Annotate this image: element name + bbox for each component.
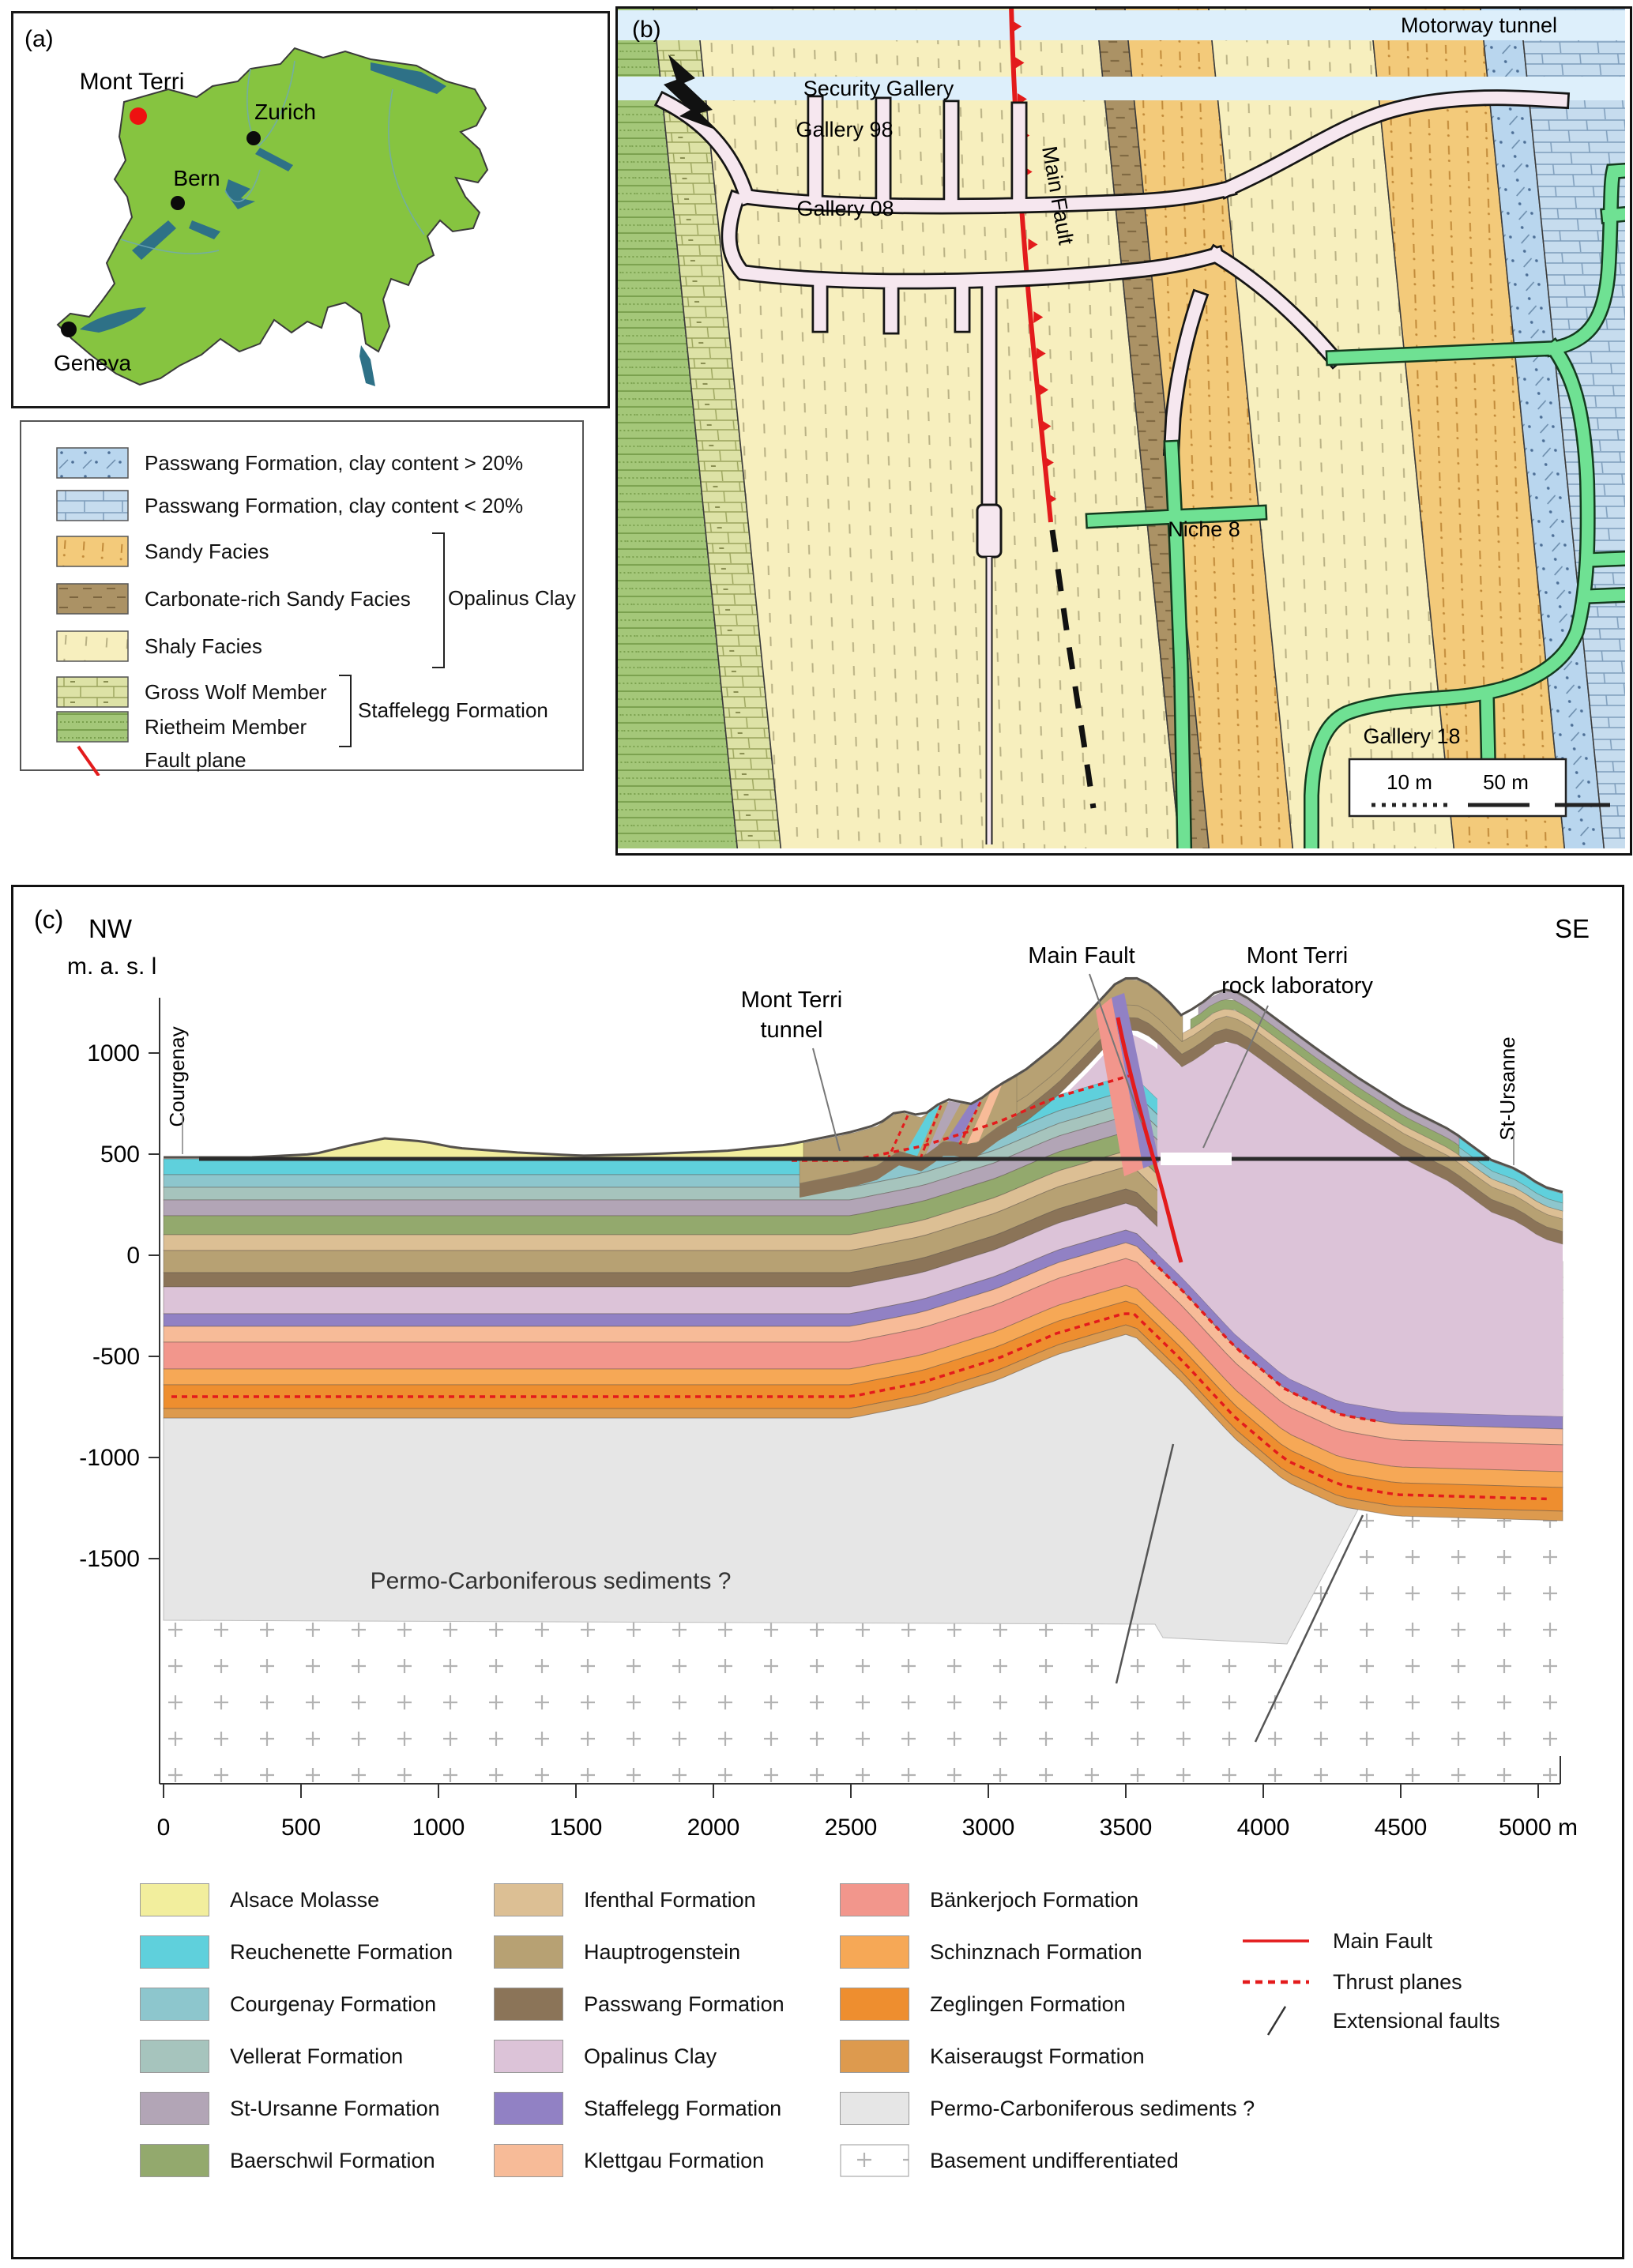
panel-b-gallery-map: (b) Motorway tunnel Security Gallery Gal… xyxy=(615,6,1632,856)
legend-b-swatch xyxy=(57,631,128,661)
rock-lab-label-1: Mont Terri xyxy=(1247,943,1348,969)
legend-c-item: Baerschwil Formation xyxy=(140,2144,435,2177)
staffelegg-group-label: Staffelegg Formation xyxy=(358,698,548,723)
legend-b-label: Passwang Formation, clay content < 20% xyxy=(145,494,523,518)
figure-root: Mont Terri Zurich Bern Geneva (a) Passwa… xyxy=(0,0,1633,2268)
legend-c-swatch xyxy=(140,2144,209,2177)
legend-c-swatch xyxy=(140,1988,209,2021)
legend-panel-c: Alsace MolasseReuchenette FormationCourg… xyxy=(13,1875,1617,2254)
legend-b-swatch xyxy=(57,677,128,707)
legend-c-item: Reuchenette Formation xyxy=(140,1935,453,1969)
legend-c-label: Passwang Formation xyxy=(584,1992,785,2017)
legend-b-label: Rietheim Member xyxy=(145,715,307,739)
legend-b-item: Passwang Formation, clay content > 20% xyxy=(56,447,523,479)
legend-c-swatch xyxy=(140,2092,209,2125)
opalinus-group-label: Opalinus Clay xyxy=(448,586,576,611)
zurich-label: Zurich xyxy=(254,100,316,124)
gallery08-label: Gallery 08 xyxy=(796,197,894,220)
rock-laboratory-gap xyxy=(1161,1153,1232,1165)
panel-c-tag: (c) xyxy=(34,905,63,934)
legend-b-swatch xyxy=(57,584,128,614)
legend-c-label: Baerschwil Formation xyxy=(230,2149,435,2173)
legend-c-label: Opalinus Clay xyxy=(584,2044,717,2069)
rock-lab-label-2: rock laboratory xyxy=(1221,973,1373,999)
x-tick-label: 5000 m xyxy=(1499,1815,1578,1841)
legend-c-label: Schinznach Formation xyxy=(930,1940,1142,1965)
legend-c-label: Ifenthal Formation xyxy=(584,1888,756,1913)
legend-c-swatch xyxy=(494,1883,563,1916)
legend-c-item: Kaiseraugst Formation xyxy=(840,2040,1145,2073)
town-st-ursanne: St-Ursanne xyxy=(1496,1036,1519,1141)
legend-b-item: Rietheim Member xyxy=(56,711,307,743)
legend-c-fault-item: Main Fault xyxy=(1240,1928,1432,1954)
x-tick-label: 1500 xyxy=(550,1815,603,1841)
legend-c-label: St-Ursanne Formation xyxy=(230,2097,440,2121)
compass-se: SE xyxy=(1555,914,1590,943)
y-tick-label: 0 xyxy=(126,1243,140,1269)
legend-b-swatch xyxy=(57,712,128,742)
legend-c-fault-label: Thrust planes xyxy=(1333,1970,1462,1995)
legend-c-label: Zeglingen Formation xyxy=(930,1992,1126,2017)
legend-b-label: Shaly Facies xyxy=(145,634,262,659)
switzerland-outline xyxy=(58,48,487,385)
gallery-bulb xyxy=(977,505,1001,557)
opalinus-bracket xyxy=(432,532,445,668)
legend-c-item: Passwang Formation xyxy=(494,1988,785,2021)
legend-c-swatch xyxy=(494,2092,563,2125)
legend-c-swatch xyxy=(494,1988,563,2021)
legend-c-label: Klettgau Formation xyxy=(584,2149,764,2173)
y-tick-label: 1000 xyxy=(87,1040,140,1066)
x-tick-label: 2000 xyxy=(687,1815,740,1841)
legend-c-swatch xyxy=(840,2040,909,2073)
mont-terri-tunnel-label-2: tunnel xyxy=(760,1017,822,1043)
panel-a-tag: (a) xyxy=(24,26,54,52)
legend-c-item: Opalinus Clay xyxy=(494,2040,717,2073)
axis-title-masl: m. a. s. l xyxy=(67,953,156,980)
legend-c-item: Staffelegg Formation xyxy=(494,2092,781,2125)
legend-c-swatch xyxy=(140,1935,209,1969)
legend-c-item: Hauptrogenstein xyxy=(494,1935,740,1969)
extensional-faults-legend-icon xyxy=(1268,2007,1285,2035)
legend-b-item: Shaly Facies xyxy=(56,630,262,662)
permo-label: Permo-Carboniferous sediments ? xyxy=(371,1568,732,1594)
x-tick-label: 3000 xyxy=(962,1815,1015,1841)
legend-c-item: St-Ursanne Formation xyxy=(140,2092,440,2125)
x-tick-label: 500 xyxy=(281,1815,321,1841)
legend-b-label: Sandy Facies xyxy=(145,540,269,564)
mont-terri-label: Mont Terri xyxy=(80,69,185,95)
mont-terri-tunnel-label-1: Mont Terri xyxy=(741,987,842,1013)
legend-c-swatch xyxy=(841,2145,909,2176)
legend-c-label: Courgenay Formation xyxy=(230,1992,436,2017)
legend-c-swatch xyxy=(840,1988,909,2021)
legend-c-fault-item: Thrust planes xyxy=(1240,1969,1462,1995)
legend-c-swatch xyxy=(840,1935,909,1969)
legend-b-item: Gross Wolf Member xyxy=(56,676,327,708)
legend-c-label: Kaiseraugst Formation xyxy=(930,2044,1145,2069)
x-tick-label: 0 xyxy=(157,1815,171,1841)
legend-c-item: Schinznach Formation xyxy=(840,1935,1142,1969)
legend-c-item: Klettgau Formation xyxy=(494,2144,764,2177)
legend-c-item: Alsace Molasse xyxy=(140,1883,379,1916)
legend-c-swatch xyxy=(494,2040,563,2073)
legend-b-label: Fault plane xyxy=(145,748,246,773)
security-gallery-label: Security Gallery xyxy=(803,77,954,100)
legend-b-label: Gross Wolf Member xyxy=(145,680,327,705)
x-tick-label: 2500 xyxy=(825,1815,878,1841)
zurich-dot xyxy=(246,131,261,145)
legend-c-item: Permo-Carboniferous sediments ? xyxy=(840,2092,1255,2125)
legend-c-label: Basement undifferentiated xyxy=(930,2149,1179,2173)
legend-c-swatch xyxy=(140,2040,209,2073)
legend-c-fault-label: Extensional faults xyxy=(1333,2009,1500,2033)
legend-c-label: Staffelegg Formation xyxy=(584,2097,781,2121)
bern-dot xyxy=(171,196,185,210)
panel-c-cross-section: 10005000-500-1000-1500050010001500200025… xyxy=(11,885,1624,2259)
legend-b-label: Carbonate-rich Sandy Facies xyxy=(145,587,411,611)
legend-b-swatch xyxy=(57,448,128,478)
legend-c-item: Courgenay Formation xyxy=(140,1988,436,2021)
x-tick-label: 4000 xyxy=(1237,1815,1290,1841)
svg-text:10 m: 10 m xyxy=(1387,770,1432,794)
geneva-dot xyxy=(61,322,77,337)
legend-c-label: Permo-Carboniferous sediments ? xyxy=(930,2097,1255,2121)
legend-b-label: Passwang Formation, clay content > 20% xyxy=(145,451,523,476)
y-tick-label: -1000 xyxy=(79,1445,140,1471)
x-tick-label: 1000 xyxy=(412,1815,465,1841)
geneva-label: Geneva xyxy=(54,351,131,375)
y-tick-label: 500 xyxy=(100,1142,140,1168)
legend-c-fault-item: Extensional faults xyxy=(1240,2003,1500,2038)
legend-c-label: Bänkerjoch Formation xyxy=(930,1888,1138,1913)
panel-a-map: Mont Terri Zurich Bern Geneva (a) xyxy=(11,11,610,408)
main-fault-label-c: Main Fault xyxy=(1028,943,1134,969)
legend-b-swatch xyxy=(57,491,128,521)
svg-text:50 m: 50 m xyxy=(1483,770,1529,794)
fault-plane-icon xyxy=(78,747,99,776)
y-tick-label: -1500 xyxy=(79,1546,140,1572)
gallery98-label: Gallery 98 xyxy=(796,118,893,141)
x-tick-label: 3500 xyxy=(1100,1815,1153,1841)
legend-c-swatch xyxy=(840,2092,909,2125)
strata-bands xyxy=(618,9,1625,848)
legend-panel-b: Passwang Formation, clay content > 20%Pa… xyxy=(20,420,584,771)
gallery18-label: Gallery 18 xyxy=(1363,724,1460,748)
town-courgenay: Courgenay xyxy=(165,1026,189,1126)
legend-b-item: Fault plane xyxy=(56,744,246,776)
legend-b-item: Passwang Formation, clay content < 20% xyxy=(56,490,523,521)
y-tick-label: -500 xyxy=(92,1344,140,1370)
compass-nw: NW xyxy=(88,914,133,943)
legend-c-swatch xyxy=(494,2144,563,2177)
legend-c-label: Hauptrogenstein xyxy=(584,1940,740,1965)
legend-c-label: Vellerat Formation xyxy=(230,2044,403,2069)
niche8-label: Niche 8 xyxy=(1168,517,1240,541)
x-tick-label: 4500 xyxy=(1375,1815,1428,1841)
legend-c-swatch xyxy=(494,1935,563,1969)
legend-c-fault-label: Main Fault xyxy=(1333,1929,1432,1954)
staffelegg-bracket xyxy=(339,675,352,747)
legend-c-swatch xyxy=(140,1883,209,1916)
legend-c-item: Basement undifferentiated xyxy=(840,2144,1179,2177)
legend-b-item: Sandy Facies xyxy=(56,536,269,567)
panel-b-tag: (b) xyxy=(632,17,661,43)
motorway-label: Motorway tunnel xyxy=(1401,13,1557,37)
legend-b-swatch xyxy=(57,536,128,566)
legend-c-item: Ifenthal Formation xyxy=(494,1883,756,1916)
legend-c-item: Bänkerjoch Formation xyxy=(840,1883,1138,1916)
mont-terri-site-dot xyxy=(130,107,147,125)
legend-c-item: Zeglingen Formation xyxy=(840,1988,1126,2021)
legend-c-swatch xyxy=(840,1883,909,1916)
legend-c-label: Alsace Molasse xyxy=(230,1888,379,1913)
legend-c-label: Reuchenette Formation xyxy=(230,1940,453,1965)
bern-label: Bern xyxy=(173,166,220,190)
legend-c-item: Vellerat Formation xyxy=(140,2040,403,2073)
legend-b-item: Carbonate-rich Sandy Facies xyxy=(56,583,411,615)
